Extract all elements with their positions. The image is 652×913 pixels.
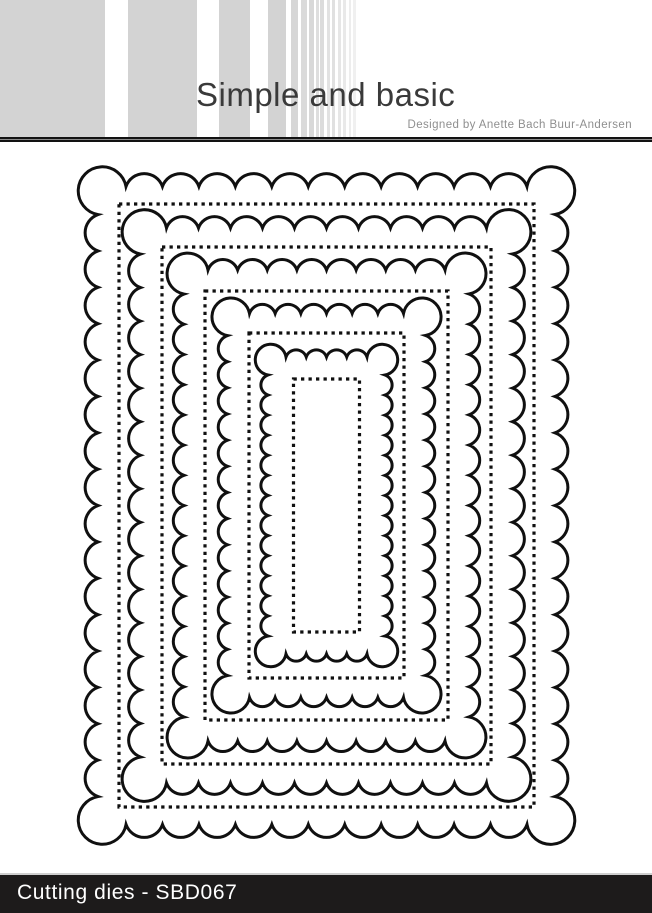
header-divider-rule — [0, 137, 652, 142]
product-code-label: Cutting dies - SBD067 — [17, 881, 237, 905]
stitch-line-4 — [249, 333, 404, 678]
stitch-line-5 — [294, 379, 360, 632]
header-stripe — [128, 0, 197, 137]
header-stripe — [309, 0, 314, 137]
header-stripe — [343, 0, 346, 137]
header-stripe — [268, 0, 286, 137]
header-stripe — [0, 0, 105, 137]
scallop-die-outline-5 — [255, 344, 397, 667]
stitch-line-2 — [162, 247, 491, 764]
designer-credit: Designed by Anette Bach Buur-Andersen — [408, 119, 633, 131]
brand-title: Simple and basic — [196, 78, 455, 111]
product-image-page: Simple and basic Designed by Anette Bach… — [0, 0, 652, 913]
header-stripe — [338, 0, 341, 137]
header-stripe — [332, 0, 335, 137]
header-stripe — [219, 0, 250, 137]
header-stripe — [349, 0, 351, 137]
die-outlines-svg — [60, 150, 593, 861]
header-stripe — [316, 0, 319, 137]
header-stripe — [291, 0, 298, 137]
header-stripe — [353, 0, 356, 137]
header-stripe — [320, 0, 324, 137]
header-stripe — [327, 0, 330, 137]
footer-bar: Cutting dies - SBD067 — [0, 873, 652, 913]
brand-header: Simple and basic Designed by Anette Bach… — [0, 0, 652, 142]
header-stripe-pattern — [0, 0, 652, 137]
header-stripe — [301, 0, 307, 137]
nested-scalloped-dies-figure — [60, 150, 593, 861]
